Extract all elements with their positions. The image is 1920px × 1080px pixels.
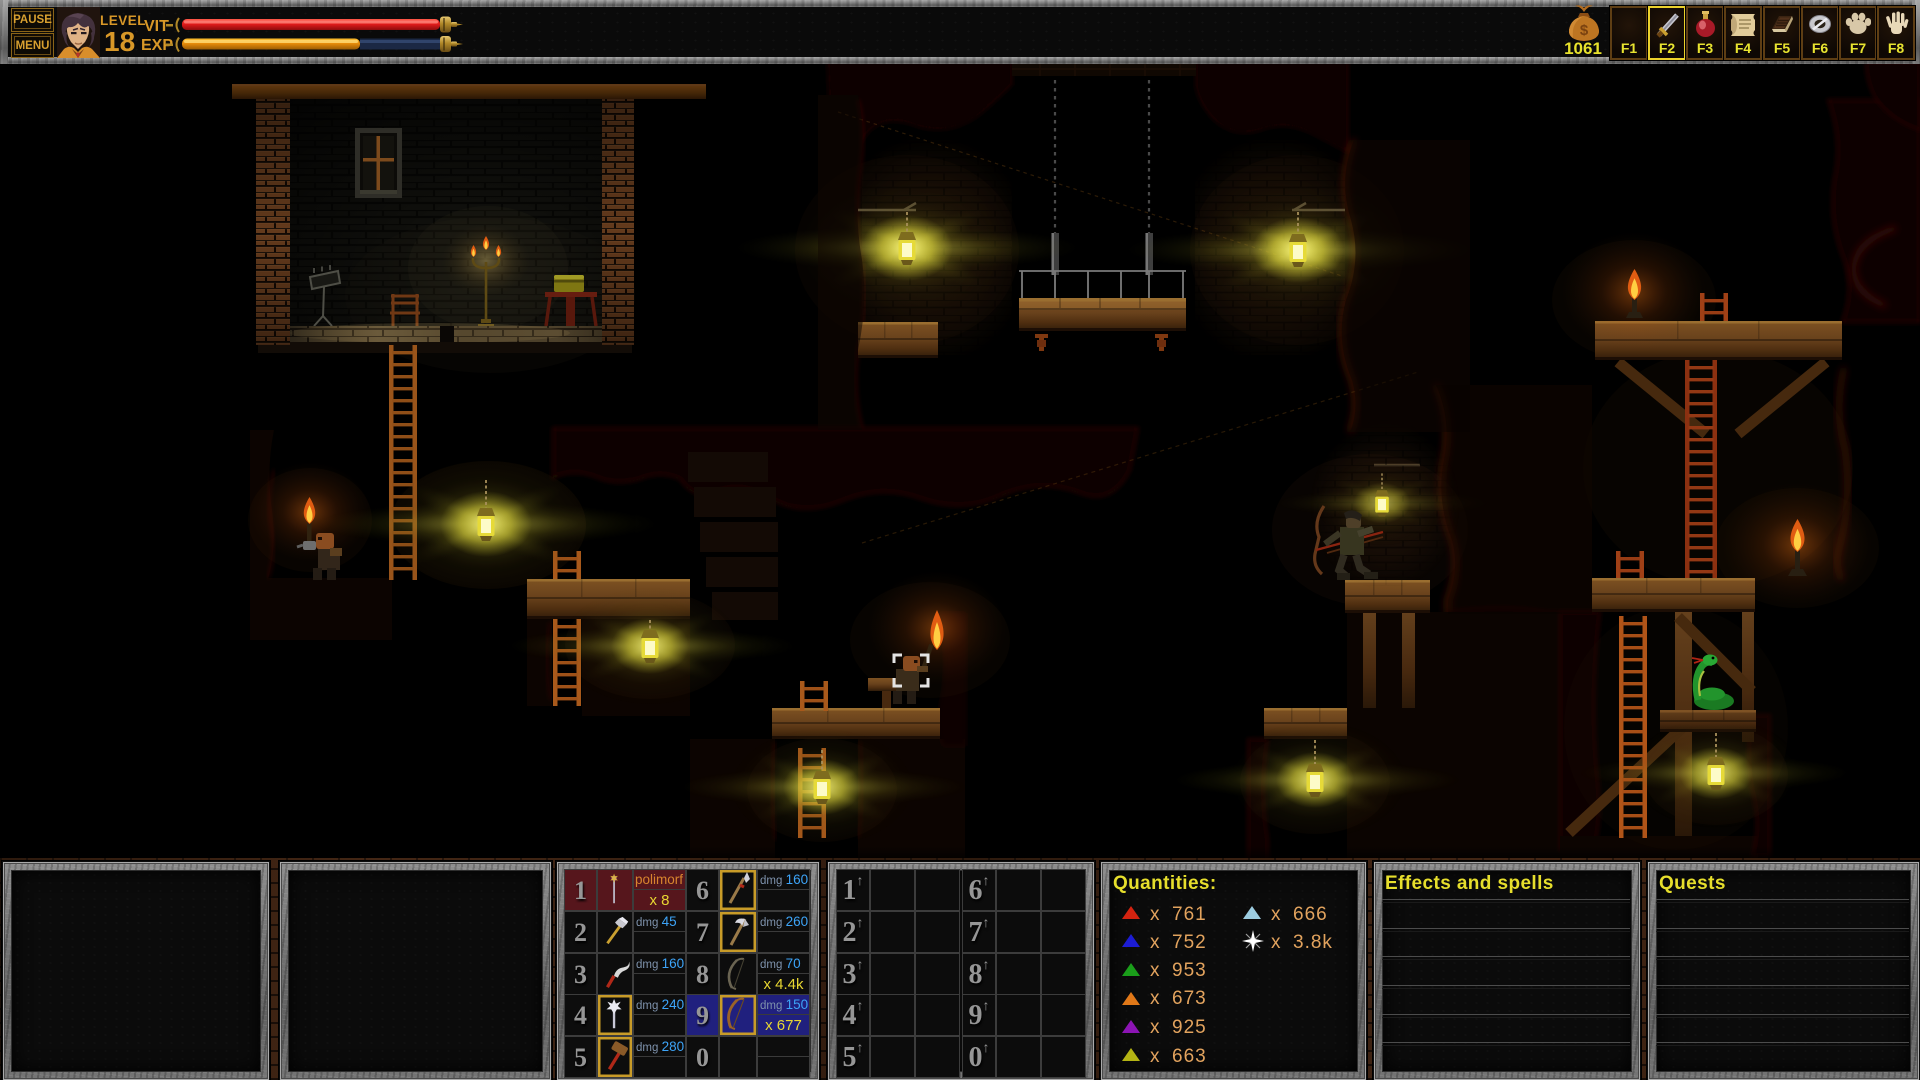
- svg-text:$: $: [1580, 22, 1589, 39]
